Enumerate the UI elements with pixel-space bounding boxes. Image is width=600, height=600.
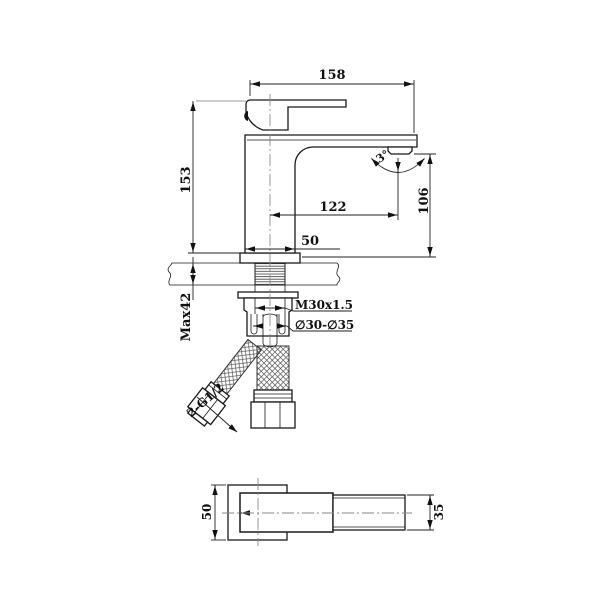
dim-outlet-height-label: 106 bbox=[417, 187, 432, 214]
dim-spout-reach-label: 122 bbox=[319, 200, 346, 215]
mounting-hardware bbox=[238, 292, 298, 347]
dim-height: 153 bbox=[179, 101, 246, 253]
body-outline bbox=[240, 493, 333, 532]
hose-right bbox=[251, 346, 295, 428]
aerator bbox=[388, 147, 412, 154]
front-view: 158 153 122 106 bbox=[168, 68, 436, 432]
dim-body-width-label: 50 bbox=[301, 234, 319, 249]
mounting-hole-label: ∅30-∅35 bbox=[295, 318, 354, 332]
dim-height-label: 153 bbox=[179, 166, 194, 193]
handle-lever bbox=[244, 100, 346, 130]
dim-plan-spout-width: 35 bbox=[407, 495, 446, 530]
spout-outline bbox=[333, 495, 405, 530]
dim-max-deck-thickness: Max42 bbox=[179, 257, 194, 341]
washer bbox=[238, 292, 298, 298]
handle-indicator-dot bbox=[244, 111, 248, 121]
shank-thread-label: M30x1.5 bbox=[295, 298, 353, 312]
dim-overall-length-label: 158 bbox=[318, 68, 345, 83]
countertop-section bbox=[168, 263, 340, 285]
plan-base-width-label: 50 bbox=[200, 504, 214, 521]
plan-spout-width-label: 35 bbox=[432, 504, 446, 521]
hose-right-hex-nut bbox=[251, 402, 295, 428]
faucet-technical-drawing: 158 153 122 106 bbox=[0, 0, 600, 600]
dim-max-deck-label: Max42 bbox=[179, 293, 194, 342]
dim-plan-base-width: 50 bbox=[200, 485, 226, 540]
bottom-view: 50 35 bbox=[200, 478, 446, 546]
technical-drawing-page: 158 153 122 106 bbox=[0, 0, 600, 600]
supply-hoses bbox=[185, 336, 295, 429]
